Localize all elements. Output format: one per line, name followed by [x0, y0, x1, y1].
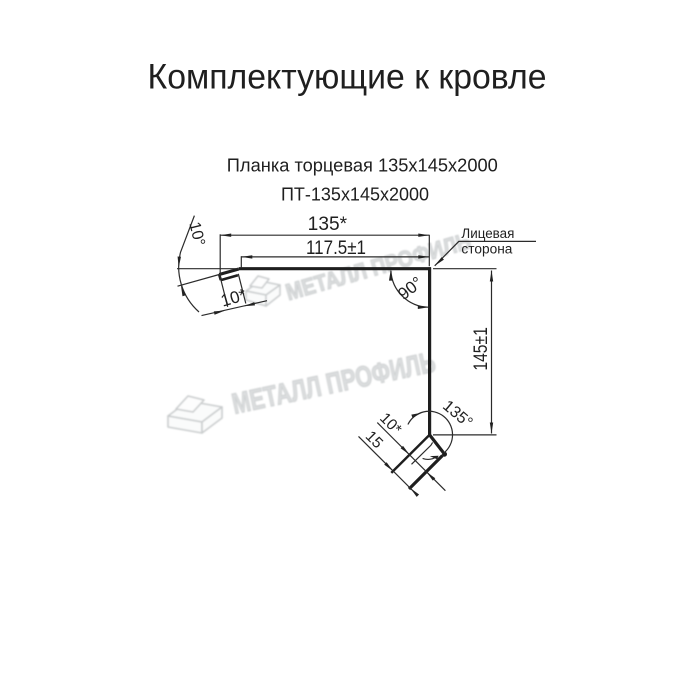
svg-text:ПТ-135х145х2000: ПТ-135х145х2000 — [281, 185, 429, 205]
svg-text:10°: 10° — [185, 220, 207, 248]
svg-text:117.5±1: 117.5±1 — [306, 238, 366, 259]
svg-text:МЕТАЛЛ ПРОФИЛЬ: МЕТАЛЛ ПРОФИЛЬ — [229, 347, 438, 421]
svg-text:135°: 135° — [439, 397, 475, 431]
svg-text:135*: 135* — [308, 214, 348, 235]
svg-text:Планка торцевая 135х145х2000: Планка торцевая 135х145х2000 — [227, 154, 498, 175]
svg-text:145±1: 145±1 — [471, 327, 492, 371]
svg-text:Комплектующие к кровле: Комплектующие к кровле — [148, 58, 547, 97]
svg-text:90°: 90° — [394, 273, 426, 304]
svg-text:Лицевая: Лицевая — [461, 226, 514, 241]
svg-text:сторона: сторона — [461, 242, 512, 257]
svg-text:15: 15 — [362, 428, 386, 452]
